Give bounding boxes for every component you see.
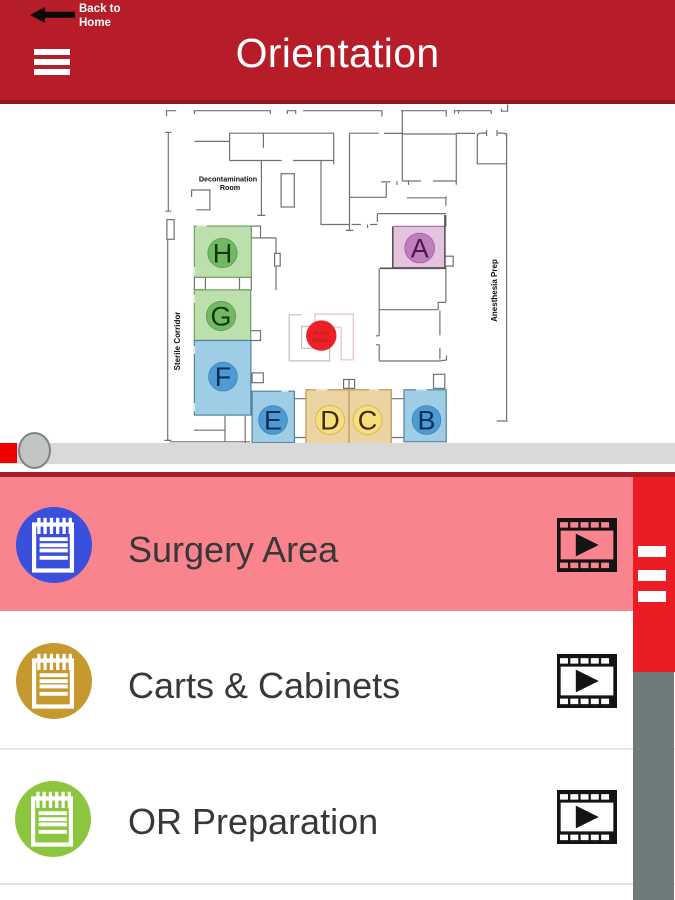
svg-text:Station: Station	[312, 338, 330, 344]
svg-text:Sterile Corridor: Sterile Corridor	[173, 312, 182, 371]
svg-text:E: E	[264, 406, 282, 436]
svg-text:G: G	[210, 302, 231, 332]
svg-text:Nurse: Nurse	[314, 331, 329, 337]
svg-text:C: C	[358, 406, 378, 436]
svg-text:H: H	[213, 239, 233, 269]
svg-text:B: B	[417, 406, 435, 436]
svg-text:F: F	[215, 362, 232, 392]
svg-text:Anesthesia Prep: Anesthesia Prep	[490, 259, 499, 322]
svg-text:Room: Room	[220, 183, 240, 192]
svg-text:D: D	[320, 406, 340, 436]
svg-text:A: A	[411, 234, 429, 264]
